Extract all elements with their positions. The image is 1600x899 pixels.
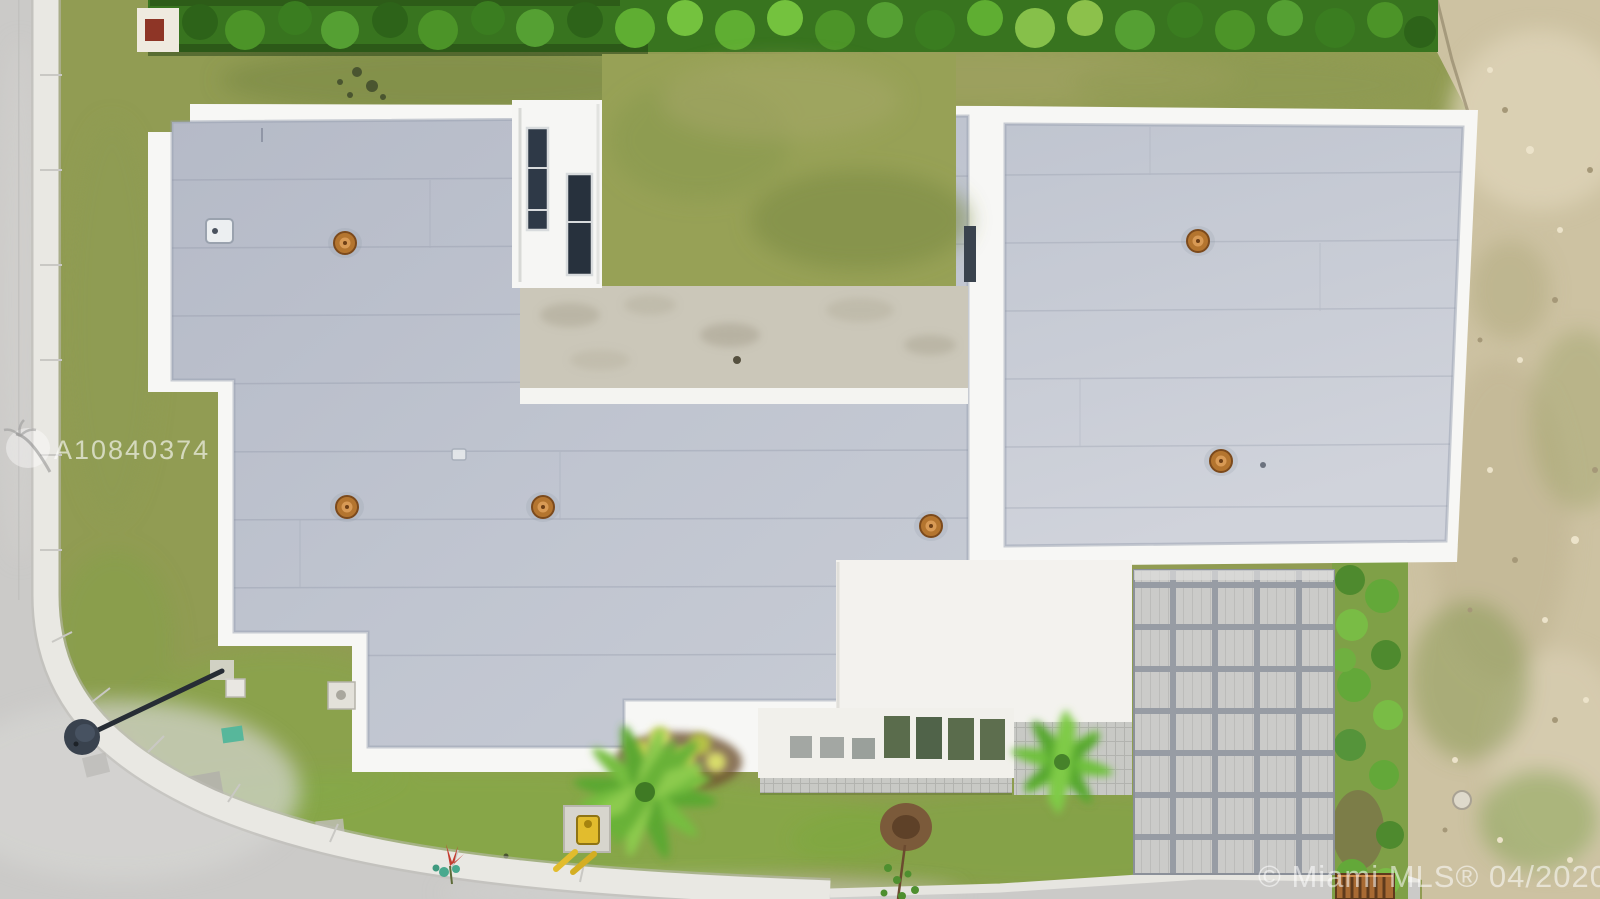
- balcony-drain-dot: [733, 356, 741, 364]
- aerial-photo: A10840374 © Miami MLS® 04/2020: [0, 0, 1600, 899]
- shrub-row: [1332, 556, 1408, 899]
- tower-window-2: [567, 174, 592, 275]
- asphalt-joint: [18, 0, 20, 600]
- listing-id-text: A10840374: [54, 435, 210, 465]
- balcony-cap: [520, 388, 968, 404]
- copyright-watermark: © Miami MLS® 04/2020: [1258, 859, 1600, 894]
- tower-window-1: [527, 128, 548, 230]
- right-wing-roof: [1005, 124, 1463, 546]
- walkway-shadow: [760, 792, 1012, 795]
- utility-pad-top: [137, 8, 179, 52]
- walkway-pavers: [760, 778, 1012, 793]
- parapet-window: [964, 226, 976, 282]
- courtyard-lawn: [602, 54, 970, 286]
- stair-tower: [512, 100, 602, 288]
- hedge-row: [148, 0, 1438, 56]
- garage-roof: [836, 560, 1132, 722]
- concrete-balcony: [520, 286, 968, 404]
- red-utility-box: [145, 19, 164, 41]
- paver-driveway: [1134, 570, 1334, 874]
- pergola-trellis: [758, 708, 1014, 778]
- teal-marker: [221, 726, 244, 744]
- sand-disc: [1453, 791, 1471, 809]
